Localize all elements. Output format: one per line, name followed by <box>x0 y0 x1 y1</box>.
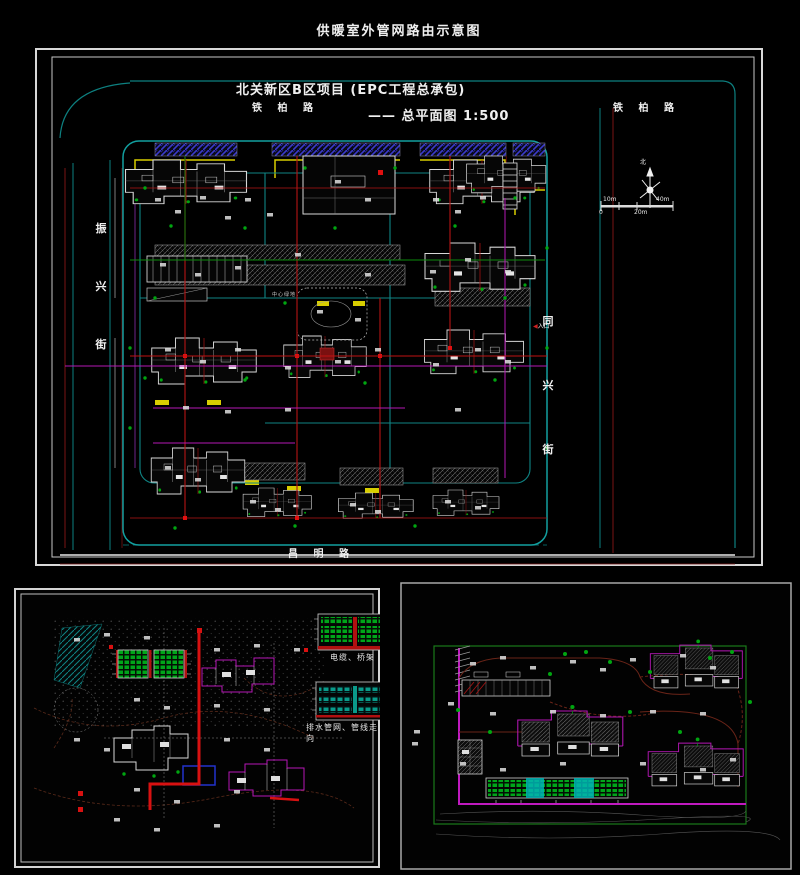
site-plan-svg <box>35 48 763 566</box>
cad-viewport: 供暖室外管网路由示意图 <box>0 0 800 875</box>
center-green-label: 中心绿地 <box>272 291 296 298</box>
north-label: 北 <box>640 157 646 166</box>
entrance-label: ◀入口 <box>533 321 550 330</box>
scale-40m: 40m <box>656 196 669 203</box>
plan-title: —— 总平面图 1:500 <box>368 105 509 124</box>
parking-strips <box>155 143 545 156</box>
project-title: 北关新区B区项目 (EPC工程总承包) <box>236 79 465 98</box>
road-label-tiebai-right: 铁 柏 路 <box>613 99 680 114</box>
buildings <box>126 156 546 518</box>
detail-right-svg <box>400 582 792 870</box>
legend-drain-elevation <box>312 682 380 720</box>
comb-building <box>147 256 247 301</box>
green-block-buildings <box>112 650 191 678</box>
road-label-changming: 昌 明 路 <box>288 545 355 560</box>
road-label-zhenxing: 振兴街 <box>94 200 108 374</box>
detail-panel-right <box>400 582 792 870</box>
scale-10m: 10m <box>603 196 616 203</box>
legend-cable-caption: 电缆、桥架 <box>330 652 375 663</box>
road-label-tiebai-left: 铁 柏 路 <box>252 99 319 114</box>
road-label-tongxing: 同兴街 <box>541 290 555 482</box>
scale-20m: 20m <box>634 209 647 216</box>
legend-drain-caption: 排水管网、管线走向 <box>306 722 380 744</box>
detail-panel-left: 电缆、桥架 排水管网、管线走向 <box>14 588 380 868</box>
frame <box>36 49 762 565</box>
scale-0: 0 <box>599 209 603 216</box>
tall-thin-building <box>458 740 482 774</box>
drawing-header-title: 供暖室外管网路由示意图 <box>35 20 763 39</box>
legend-cable-elevation <box>314 614 380 650</box>
interior-roads <box>140 173 530 483</box>
